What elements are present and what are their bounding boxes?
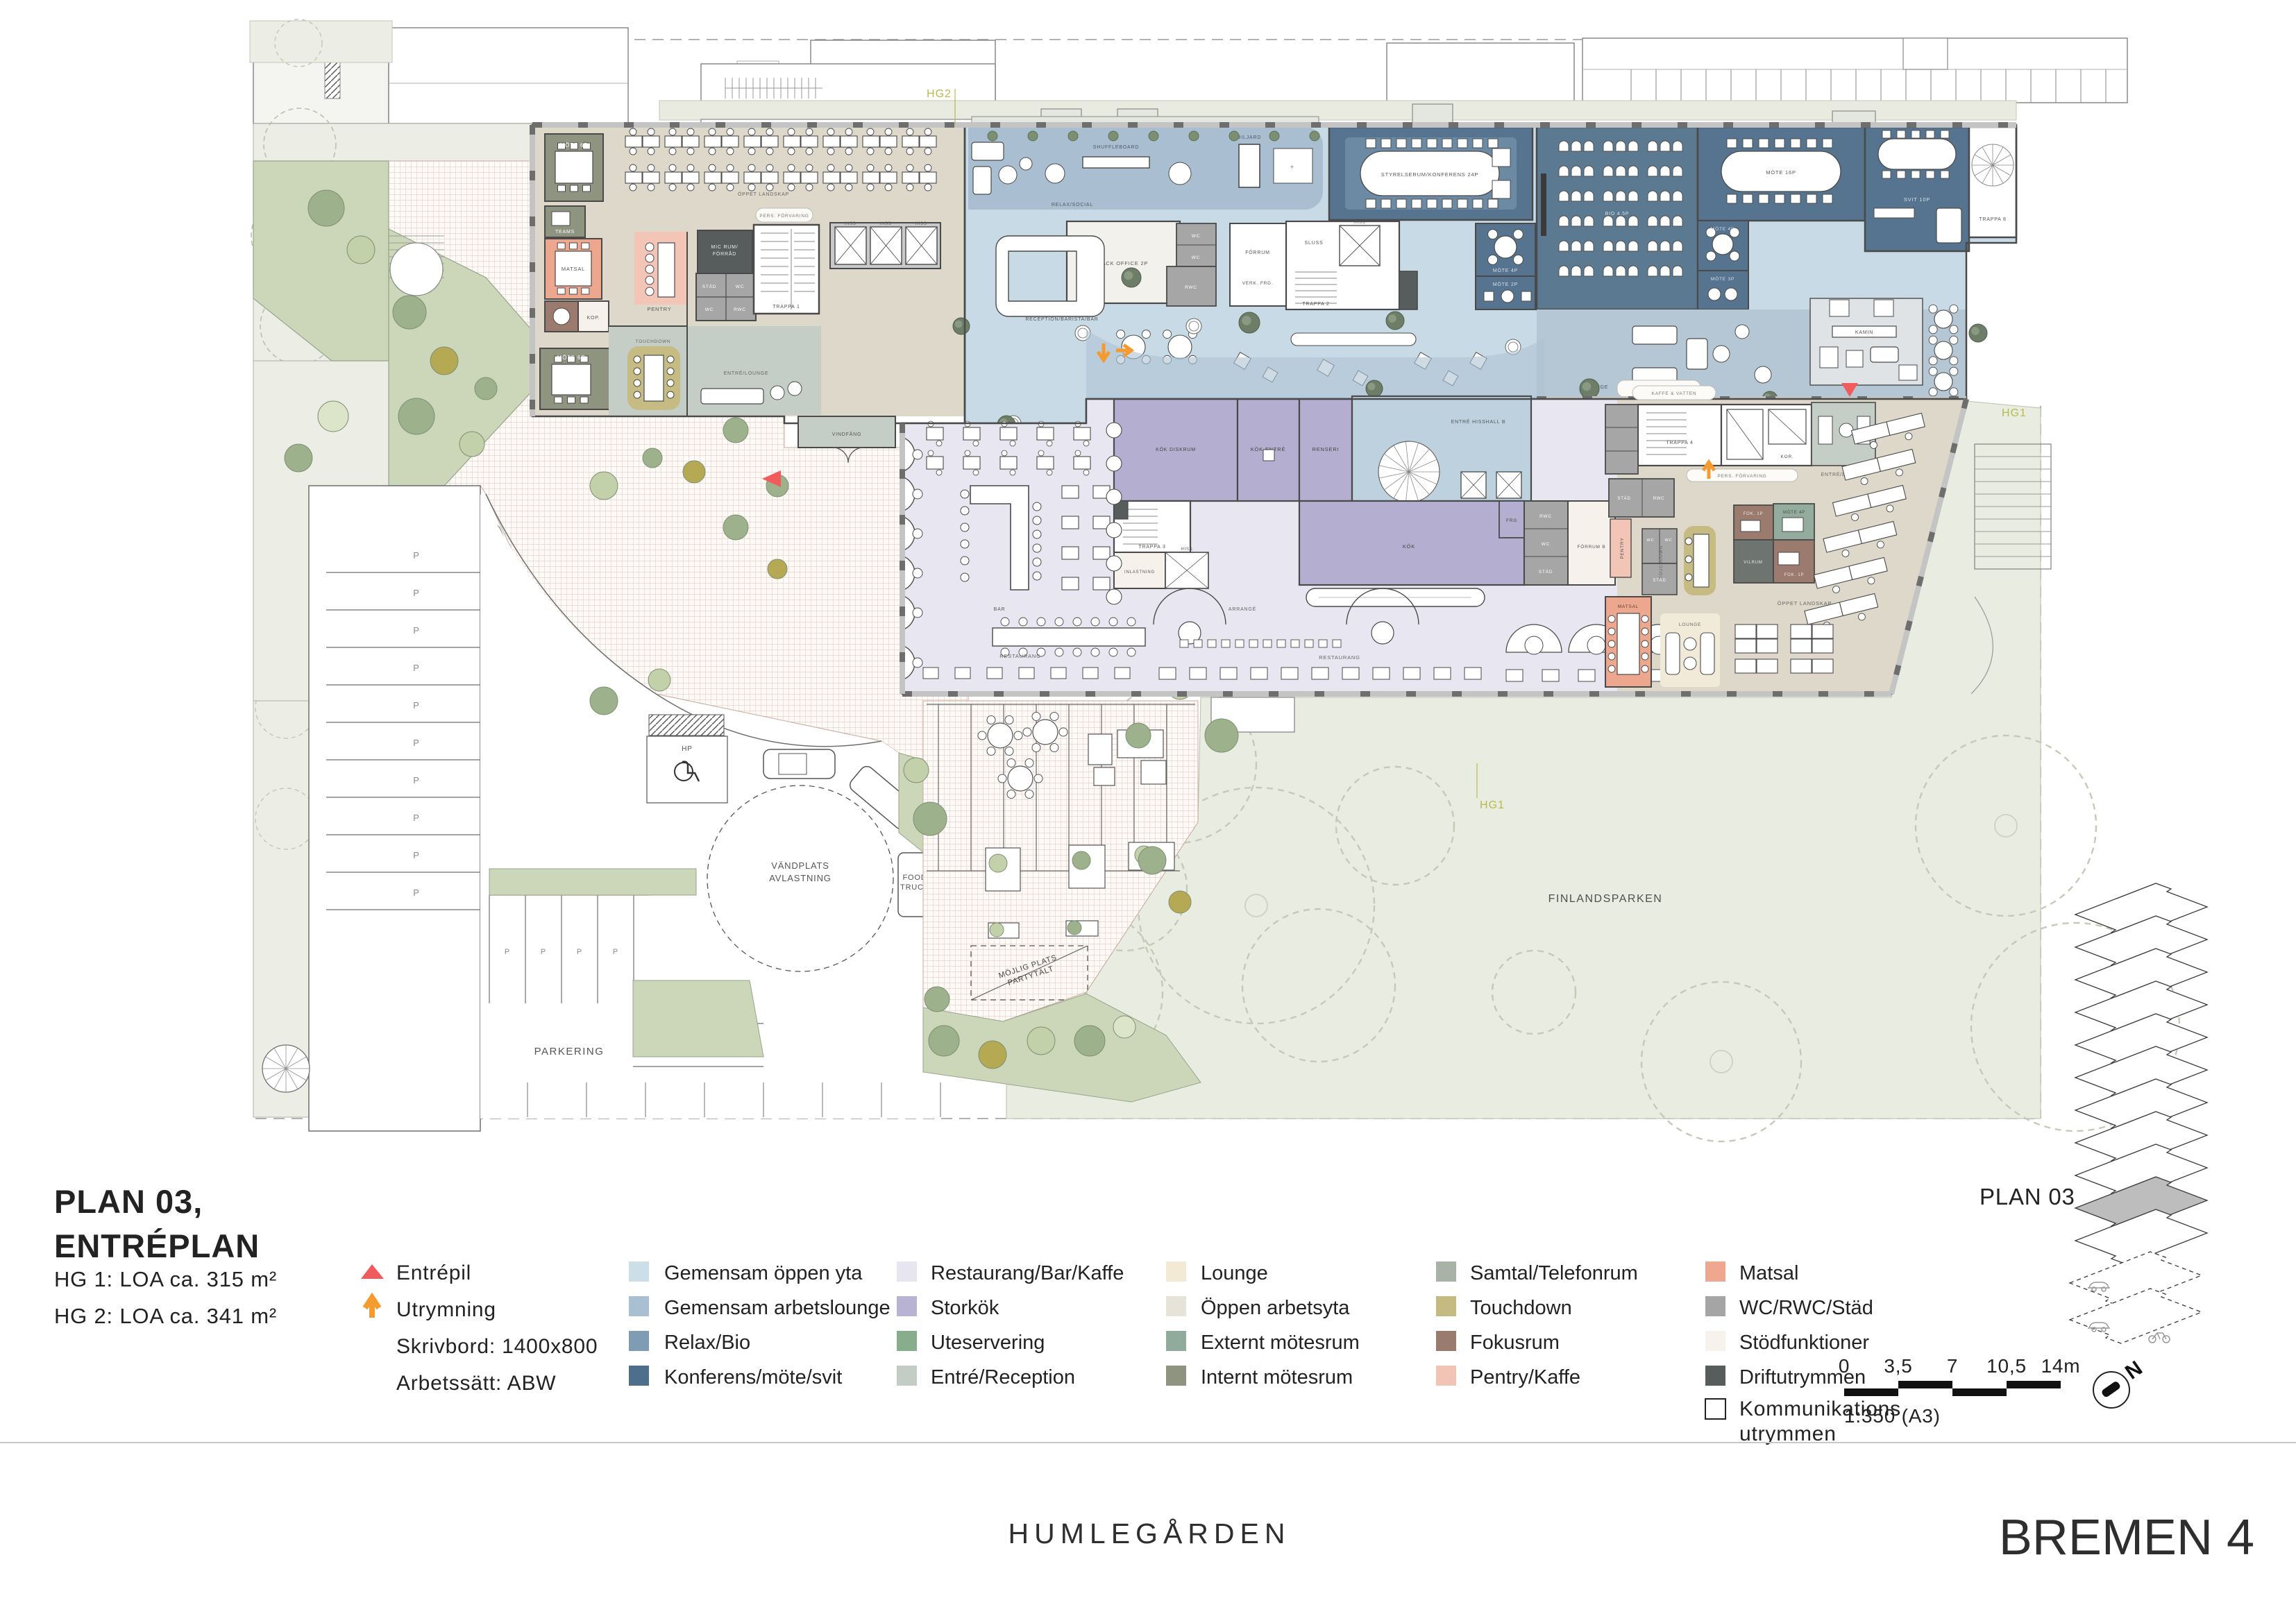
svg-text:PERS. FÖRVARING: PERS. FÖRVARING [759,213,809,219]
svg-text:HG1: HG1 [1480,799,1505,811]
svg-text:Gemensam öppen yta: Gemensam öppen yta [664,1262,863,1284]
svg-text:VINDFÅNG: VINDFÅNG [832,431,862,437]
svg-text:HISS: HISS [915,222,927,226]
svg-text:SVIT 10P: SVIT 10P [1904,196,1930,203]
svg-text:TRAPPA 8: TRAPPA 8 [1979,217,2006,222]
svg-text:TRAPPA 4: TRAPPA 4 [1666,441,1693,445]
svg-text:HG 2: LOA ca. 341 m²: HG 2: LOA ca. 341 m² [54,1304,277,1328]
svg-text:WC: WC [1192,255,1200,260]
svg-text:P: P [413,775,419,785]
svg-text:Entrépil: Entrépil [396,1261,471,1284]
svg-text:HP: HP [682,745,693,753]
svg-text:MÖTE 4P: MÖTE 4P [1783,510,1805,515]
svg-text:PENTRY: PENTRY [647,306,671,312]
svg-text:STÄD: STÄD [702,284,717,289]
svg-text:ENTRÉPLAN: ENTRÉPLAN [54,1227,260,1264]
svg-text:0: 0 [1839,1355,1850,1377]
svg-text:Öppen arbetsyta: Öppen arbetsyta [1201,1297,1350,1319]
svg-text:Samtal/Telefonrum: Samtal/Telefonrum [1470,1262,1638,1284]
svg-text:Konferens/möte/svit: Konferens/möte/svit [664,1366,842,1388]
svg-text:RECEPTION/BARISTA/BAR: RECEPTION/BARISTA/BAR [1025,317,1098,322]
svg-text:RELAX/SOCIAL: RELAX/SOCIAL [1052,203,1093,207]
svg-text:Internt mötesrum: Internt mötesrum [1201,1366,1353,1388]
svg-text:Fokusrum: Fokusrum [1470,1332,1560,1354]
svg-text:BREMEN 4: BREMEN 4 [1999,1510,2254,1565]
svg-text:KAMIN: KAMIN [1855,330,1873,335]
svg-text:14m: 14m [2041,1355,2081,1377]
svg-text:P: P [413,663,419,673]
svg-text:RWC: RWC [1185,285,1197,290]
svg-text:INLASTNING: INLASTNING [1124,570,1155,575]
svg-text:AVLASTNING: AVLASTNING [769,873,831,883]
svg-text:MATSAL: MATSAL [562,266,585,272]
svg-text:P: P [541,948,546,956]
svg-text:1:350 (A3): 1:350 (A3) [1844,1405,1941,1427]
svg-text:WC: WC [705,307,714,312]
svg-text:HG1: HG1 [2002,407,2027,419]
svg-text:HISS: HISS [844,222,856,226]
svg-text:ARRANGÉ: ARRANGÉ [1229,606,1256,612]
svg-text:Storkök: Storkök [931,1297,999,1319]
svg-text:TEAMS: TEAMS [555,230,575,235]
svg-text:P: P [413,588,419,598]
svg-text:BILJARD: BILJARD [1238,135,1261,140]
svg-text:KOP.: KOP. [586,316,600,321]
svg-text:Matsal: Matsal [1739,1262,1798,1284]
svg-text:SLUSS: SLUSS [1305,241,1324,246]
svg-text:TOUCHDOWN: TOUCHDOWN [1660,545,1664,578]
svg-text:RESTAURANG: RESTAURANG [999,653,1041,659]
svg-text:WC: WC [1665,538,1673,543]
svg-text:MÖTE 6P: MÖTE 6P [557,355,586,361]
svg-text:HG2: HG2 [927,88,952,100]
svg-text:P: P [577,948,582,956]
svg-text:BACK OFFICE 2P: BACK OFFICE 2P [1098,260,1148,266]
svg-text:TOUCHDOWN: TOUCHDOWN [636,339,671,344]
svg-text:Restaurang/Bar/Kaffe: Restaurang/Bar/Kaffe [931,1262,1124,1284]
svg-text:MATSAL: MATSAL [1618,604,1639,609]
svg-text:7: 7 [1947,1355,1958,1377]
svg-text:PENTRY: PENTRY [1620,537,1625,559]
svg-text:MÖTE 3P: MÖTE 3P [1711,276,1734,282]
svg-text:FOK. 1P: FOK. 1P [1784,573,1805,577]
svg-text:FÖRRÅD: FÖRRÅD [713,250,736,257]
svg-text:WC: WC [1542,542,1550,547]
svg-text:RESTAURANG: RESTAURANG [1319,654,1360,661]
svg-text:HUMLEGÅRDEN: HUMLEGÅRDEN [1008,1518,1291,1549]
svg-text:WC: WC [1192,234,1200,239]
svg-text:STÄD: STÄD [1617,496,1630,501]
svg-text:HISS: HISS [1181,547,1192,552]
svg-text:LOUNGE: LOUNGE [1679,622,1701,627]
svg-text:Gemensam arbetslounge: Gemensam arbetslounge [664,1297,890,1319]
svg-text:P: P [413,625,419,636]
svg-text:Relax/Bio: Relax/Bio [664,1332,750,1354]
svg-text:RWC: RWC [734,307,746,312]
svg-text:FOK. 1P: FOK. 1P [1744,512,1764,516]
svg-text:MÖTE 2P: MÖTE 2P [1493,282,1518,287]
svg-text:ÖPPET LANDSKAP: ÖPPET LANDSKAP [738,192,789,197]
svg-text:RWC: RWC [1539,514,1552,519]
svg-text:WC/RWC/Städ: WC/RWC/Städ [1739,1297,1873,1319]
svg-text:Pentry/Kaffe: Pentry/Kaffe [1470,1366,1580,1388]
svg-text:PERS. FÖRVARING: PERS. FÖRVARING [1717,473,1766,479]
svg-text:P: P [413,887,419,898]
svg-text:FÖRRUM B: FÖRRUM B [1577,544,1605,550]
svg-text:ÖPPET LANDSKAP: ÖPPET LANDSKAP [1778,600,1832,606]
svg-text:TRAPPA 2: TRAPPA 2 [1302,302,1329,307]
svg-text:PLAN 03: PLAN 03 [1980,1184,2075,1209]
svg-text:+: + [1290,164,1295,171]
svg-text:MÖTE 4P: MÖTE 4P [1711,226,1734,232]
svg-text:Skrivbord: 1400x800: Skrivbord: 1400x800 [396,1335,598,1358]
svg-text:P: P [413,738,419,748]
svg-text:VILRUM: VILRUM [1744,561,1762,565]
svg-text:VÄNDPLATS: VÄNDPLATS [771,860,829,871]
svg-text:ENTRÉ HISSHALL B: ENTRÉ HISSHALL B [1451,418,1506,425]
svg-text:MÖTE 6P: MÖTE 6P [560,142,589,148]
svg-text:PLAN 03,: PLAN 03, [54,1183,203,1220]
svg-text:WC: WC [736,284,744,289]
svg-text:Touchdown: Touchdown [1470,1297,1572,1319]
svg-text:TRAPPA 3: TRAPPA 3 [1138,545,1165,550]
svg-text:FINLANDSPARKEN: FINLANDSPARKEN [1548,893,1663,905]
svg-text:Arbetssätt: ABW: Arbetssätt: ABW [396,1372,556,1395]
svg-text:P: P [505,948,510,956]
svg-text:10,5: 10,5 [1986,1355,2027,1377]
svg-text:WC: WC [1647,538,1655,543]
svg-text:STÄD: STÄD [1539,569,1553,575]
svg-text:RENSERI: RENSERI [1312,446,1340,452]
svg-text:VERK. FRD.: VERK. FRD. [1242,281,1273,286]
svg-text:3,5: 3,5 [1884,1355,1912,1377]
svg-text:HISS: HISS [1353,221,1365,225]
svg-text:P: P [613,948,618,956]
svg-text:FRG: FRG [1506,518,1517,523]
svg-text:TRAPPA 1: TRAPPA 1 [773,305,800,309]
svg-text:HG 1: LOA ca. 315 m²: HG 1: LOA ca. 315 m² [54,1267,277,1291]
svg-text:RWC: RWC [1653,497,1665,501]
svg-text:Utrymning: Utrymning [396,1298,496,1321]
svg-text:Entré/Reception: Entré/Reception [931,1366,1075,1388]
svg-text:MÖTE 4P: MÖTE 4P [1493,268,1518,273]
svg-text:MÖTE 16P: MÖTE 16P [1766,169,1796,176]
svg-text:HISS: HISS [879,222,891,226]
svg-text:KOR.: KOR. [1780,454,1793,459]
svg-text:Stödfunktioner: Stödfunktioner [1739,1332,1869,1354]
svg-text:Uteservering: Uteservering [931,1332,1045,1354]
svg-text:Externt mötesrum: Externt mötesrum [1201,1332,1360,1354]
svg-text:P: P [413,813,419,823]
svg-text:FÖRRUM: FÖRRUM [1245,250,1270,255]
svg-text:KÖK DISKRUM: KÖK DISKRUM [1156,447,1196,452]
svg-text:KAFFE & VATTEN: KAFFE & VATTEN [1652,391,1697,396]
svg-text:STYRELSERUM/KONFERENS 24P: STYRELSERUM/KONFERENS 24P [1381,171,1478,178]
svg-text:P: P [413,850,419,860]
svg-text:MIC RUM/: MIC RUM/ [711,245,738,250]
svg-text:P: P [413,700,419,711]
svg-text:PARKERING: PARKERING [534,1046,605,1057]
svg-text:KÖK: KÖK [1403,543,1415,550]
svg-text:BAR: BAR [994,607,1006,612]
svg-text:ENTRÉ/LOUNGE: ENTRÉ/LOUNGE [724,370,769,376]
svg-text:Lounge: Lounge [1201,1262,1268,1284]
svg-text:P: P [413,550,419,561]
svg-text:SHUFFLEBOARD: SHUFFLEBOARD [1093,145,1139,150]
